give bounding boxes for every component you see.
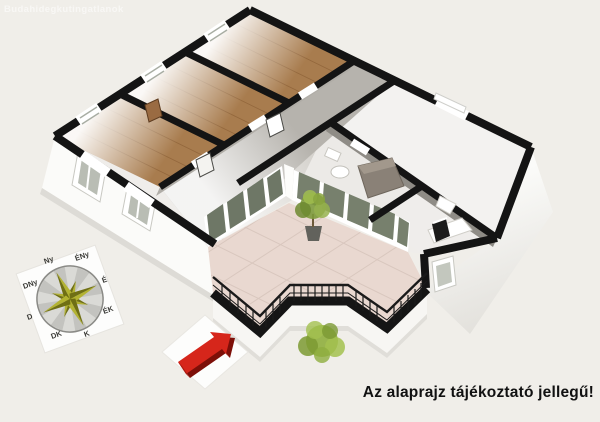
toilet — [331, 166, 349, 178]
watermark: Budahidegkutingatlanok — [4, 4, 124, 15]
floor-plan-image: É ÉK K DK D DNy Ny ÉNy Budahidegkutingat… — [0, 0, 600, 422]
floor-plan-render: É ÉK K DK D DNy Ny ÉNy — [0, 0, 600, 422]
disclaimer-text: Az alaprajz tájékoztató jellegű! — [328, 384, 594, 402]
